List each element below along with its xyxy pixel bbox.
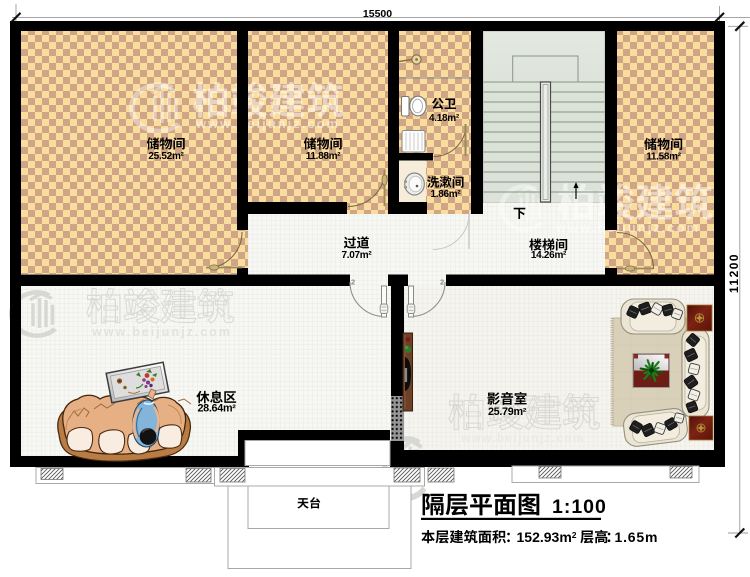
svg-text:1.65m: 1.65m (615, 529, 659, 545)
svg-text:1.86m²: 1.86m² (431, 189, 462, 200)
svg-text:25.79m²: 25.79m² (488, 406, 527, 418)
svg-text:152.93m2: 152.93m2 (517, 529, 577, 545)
svg-text:11200: 11200 (727, 253, 741, 293)
svg-text:25.52m²: 25.52m² (148, 151, 184, 162)
svg-text:11.88m²: 11.88m² (306, 151, 342, 162)
svg-text:14.26m²: 14.26m² (531, 250, 567, 261)
svg-text:1:100: 1:100 (552, 496, 607, 518)
svg-text:28.64m²: 28.64m² (197, 403, 236, 415)
svg-text:2: 2 (351, 278, 355, 287)
svg-text:www.beijunjz.com: www.beijunjz.com (555, 220, 700, 235)
svg-text:www.beijunjz.com: www.beijunjz.com (91, 325, 232, 339)
svg-text:11.58m²: 11.58m² (646, 152, 682, 163)
svg-text:www.beijunjz.com: www.beijunjz.com (195, 116, 340, 131)
svg-text:7.07m²: 7.07m² (342, 250, 373, 261)
svg-text:2: 2 (440, 278, 444, 287)
svg-text:15500: 15500 (363, 8, 392, 20)
svg-text:4.18m²: 4.18m² (429, 113, 460, 124)
svg-text:www.beijunjz.com: www.beijunjz.com (460, 433, 584, 445)
